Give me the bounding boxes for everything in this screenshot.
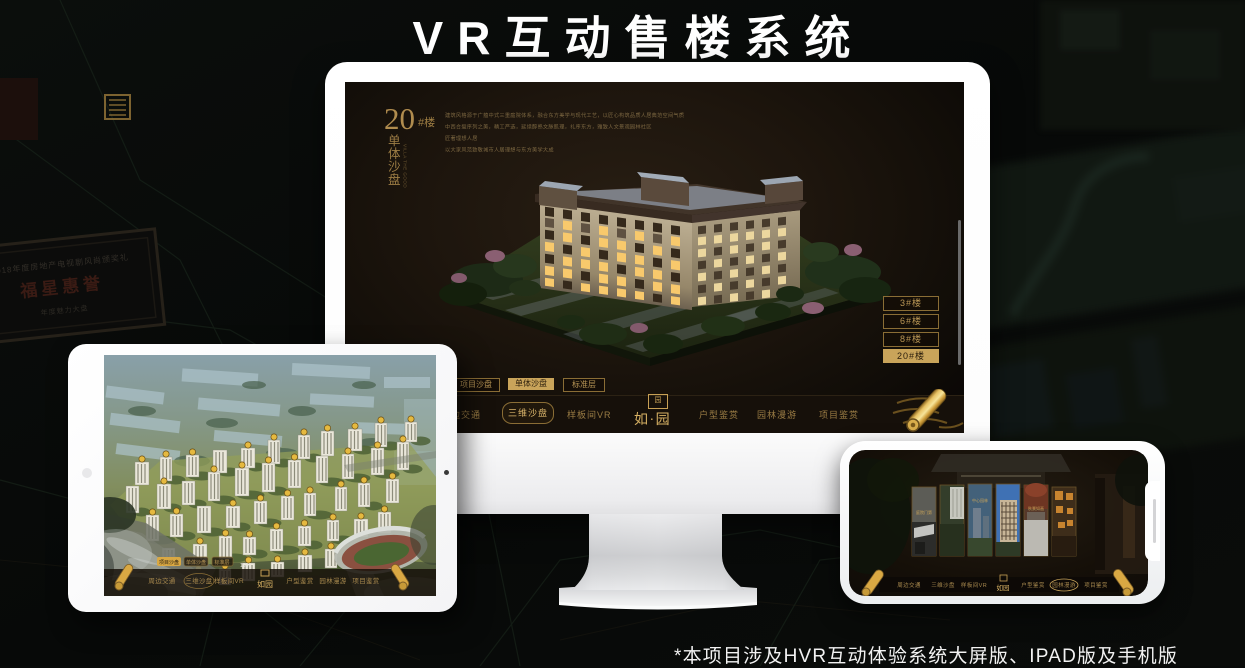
svg-text:标准层: 标准层 bbox=[214, 559, 229, 566]
svg-text:三维沙盘: 三维沙盘 bbox=[185, 576, 212, 585]
svg-text:样板间VR: 样板间VR bbox=[961, 581, 987, 589]
svg-text:项目沙盘: 项目沙盘 bbox=[159, 559, 179, 566]
svg-text:周边交通: 周边交通 bbox=[897, 581, 921, 589]
svg-text:庭院门第: 庭院门第 bbox=[916, 509, 932, 515]
svg-text:园林漫游: 园林漫游 bbox=[1052, 581, 1076, 589]
svg-text:如园: 如园 bbox=[257, 579, 273, 589]
svg-text:户型鉴赏: 户型鉴赏 bbox=[286, 576, 313, 585]
svg-text:户型鉴赏: 户型鉴赏 bbox=[1021, 581, 1045, 589]
svg-text:周边交通: 周边交通 bbox=[148, 576, 175, 585]
svg-text:三维沙盘: 三维沙盘 bbox=[931, 581, 955, 589]
svg-text:项目鉴赏: 项目鉴赏 bbox=[1084, 581, 1108, 589]
svg-text:样板间VR: 样板间VR bbox=[214, 576, 244, 585]
svg-text:中心园林: 中心园林 bbox=[972, 497, 988, 503]
svg-text:秋景如画: 秋景如画 bbox=[1028, 505, 1044, 511]
svg-text:单体沙盘: 单体沙盘 bbox=[186, 559, 206, 566]
svg-text:园林漫游: 园林漫游 bbox=[319, 576, 346, 585]
svg-text:1386: 1386 bbox=[240, 563, 251, 569]
svg-text:如园: 如园 bbox=[997, 583, 1010, 592]
svg-text:项目鉴赏: 项目鉴赏 bbox=[352, 576, 379, 585]
